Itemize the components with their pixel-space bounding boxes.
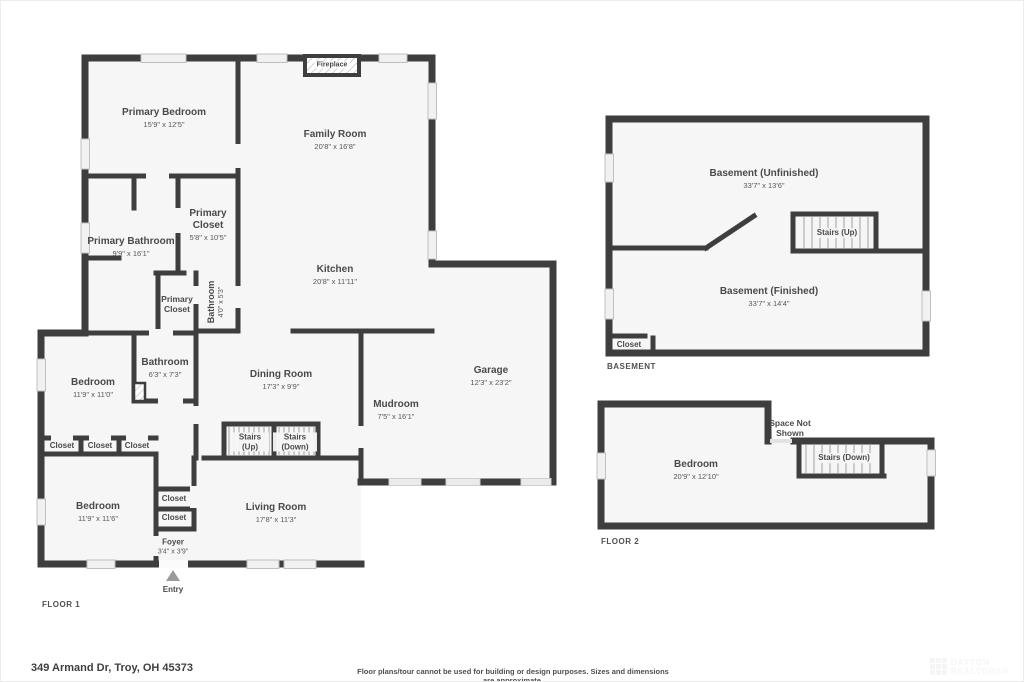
basement-section-label: BASEMENT bbox=[607, 362, 656, 371]
watermark-line1: DAYTON bbox=[951, 658, 1009, 667]
room-name: Closet bbox=[50, 441, 74, 451]
room-name: Bathroom bbox=[141, 357, 188, 369]
room-label-foyer: Foyer 3'4" x 3'9" bbox=[158, 538, 189, 557]
room-label-basement-closet: Closet bbox=[617, 340, 641, 350]
room-name: Primary Closet bbox=[151, 294, 203, 314]
room-dims: 20'8" x 16'8" bbox=[304, 142, 367, 151]
room-dims: 4'0" x 5'3" bbox=[218, 281, 226, 324]
room-name: Basement (Unfinished) bbox=[710, 168, 819, 180]
room-name: Primary Bedroom bbox=[122, 107, 206, 119]
room-label-living-room: Living Room 17'8" x 11'3" bbox=[246, 502, 307, 524]
room-name: Bathroom bbox=[206, 281, 217, 324]
floorplan-page: Primary Bedroom 15'9" x 12'5" Family Roo… bbox=[0, 0, 1024, 682]
room-label-closet-row-3: Closet bbox=[125, 441, 149, 451]
room-dims: 3'4" x 3'9" bbox=[158, 548, 189, 556]
room-label-primary-bedroom: Primary Bedroom 15'9" x 12'5" bbox=[122, 107, 206, 129]
room-name: Closet bbox=[88, 441, 112, 451]
room-name: Stairs (Up) bbox=[233, 432, 267, 451]
room-dims: 11'9" x 11'6" bbox=[76, 514, 120, 523]
room-dims: 17'8" x 11'3" bbox=[246, 515, 307, 524]
room-dims: 20'8" x 11'11" bbox=[313, 277, 357, 286]
room-label-closet-stack-2: Closet bbox=[162, 513, 186, 523]
room-name: Mudroom bbox=[373, 399, 419, 411]
room-dims: 6'3" x 7'3" bbox=[141, 370, 188, 379]
realtor-watermark: DAYTON REALTORS® bbox=[930, 658, 1009, 676]
floor1-section-label: FLOOR 1 bbox=[42, 600, 80, 609]
room-name: Family Room bbox=[304, 129, 367, 141]
room-dims: 33'7" x 13'6" bbox=[710, 181, 819, 190]
floorplan-drawing bbox=[1, 1, 1024, 682]
room-name: Foyer bbox=[158, 538, 189, 548]
room-dims: 5'8" x 10'5" bbox=[179, 233, 237, 242]
room-dims: 15'9" x 12'5" bbox=[122, 120, 206, 129]
room-name: Garage bbox=[470, 365, 511, 377]
room-name: Stairs (Down) bbox=[818, 453, 870, 463]
room-label-bathroom: Bathroom 6'3" x 7'3" bbox=[141, 357, 188, 379]
room-label-closet-stack-1: Closet bbox=[162, 494, 186, 504]
room-name: Closet bbox=[617, 340, 641, 350]
property-address: 349 Armand Dr, Troy, OH 45373 bbox=[31, 662, 193, 674]
watermark-line2: REALTORS® bbox=[951, 667, 1009, 676]
room-name: Primary Bathroom bbox=[87, 236, 174, 248]
room-label-bathroom-small: Bathroom 4'0" x 5'3" bbox=[206, 281, 226, 324]
room-label-closet-row-1: Closet bbox=[50, 441, 74, 451]
room-label-bedroom-1: Bedroom 11'9" x 11'0" bbox=[71, 377, 115, 399]
room-label-bedroom-2: Bedroom 11'9" x 11'6" bbox=[76, 501, 120, 523]
room-dims: 17'3" x 9'9" bbox=[250, 382, 312, 391]
room-name: Dining Room bbox=[250, 369, 312, 381]
room-name: Basement (Finished) bbox=[720, 286, 818, 298]
room-dims: 7'5" x 16'1" bbox=[373, 412, 419, 421]
floor2-section-label: FLOOR 2 bbox=[601, 537, 639, 546]
room-name: Stairs (Up) bbox=[817, 228, 857, 238]
room-label-garage: Garage 12'3" x 23'2" bbox=[470, 365, 511, 387]
room-label-basement-finished: Basement (Finished) 33'7" x 14'4" bbox=[720, 286, 818, 308]
room-label-primary-closet-2: Primary Closet bbox=[151, 294, 203, 314]
room-name: Primary Closet bbox=[179, 208, 237, 232]
realtor-grid-icon bbox=[930, 658, 947, 675]
realtor-watermark-text: DAYTON REALTORS® bbox=[951, 658, 1009, 676]
room-name: Stairs (Down) bbox=[275, 432, 315, 451]
room-name: Bedroom bbox=[673, 459, 718, 471]
room-label-mudroom: Mudroom 7'5" x 16'1" bbox=[373, 399, 419, 421]
room-label-primary-bathroom: Primary Bathroom 9'9" x 16'1" bbox=[87, 236, 174, 258]
room-dims: 11'9" x 11'0" bbox=[71, 390, 115, 399]
room-dims: 33'7" x 14'4" bbox=[720, 299, 818, 308]
room-label-primary-closet-1: Primary Closet 5'8" x 10'5" bbox=[179, 208, 237, 242]
room-label-stairs-down-f2: Stairs (Down) bbox=[816, 453, 872, 463]
room-name: Living Room bbox=[246, 502, 307, 514]
room-label-stairs-up-f1: Stairs (Up) bbox=[231, 432, 269, 451]
room-name: Kitchen bbox=[313, 264, 357, 276]
room-name: Closet bbox=[162, 494, 186, 504]
room-label-basement-unfinished: Basement (Unfinished) 33'7" x 13'6" bbox=[710, 168, 819, 190]
room-label-family-room: Family Room 20'8" x 16'8" bbox=[304, 129, 367, 151]
room-label-kitchen: Kitchen 20'8" x 11'11" bbox=[313, 264, 357, 286]
room-name: Closet bbox=[162, 513, 186, 523]
disclaimer-text: Floor plans/tour cannot be used for buil… bbox=[352, 667, 674, 682]
room-label-stairs-up-basement: Stairs (Up) bbox=[815, 228, 859, 238]
fireplace-label: Fireplace bbox=[315, 62, 350, 69]
room-label-space-not-shown: Space Not Shown bbox=[755, 418, 825, 438]
room-label-bedroom-f2: Bedroom 20'9" x 12'10" bbox=[673, 459, 718, 481]
room-name: Closet bbox=[125, 441, 149, 451]
room-dims: 20'9" x 12'10" bbox=[673, 472, 718, 481]
room-dims: 12'3" x 23'2" bbox=[470, 378, 511, 387]
room-name: Bedroom bbox=[71, 377, 115, 389]
room-name: Space Not Shown bbox=[755, 418, 825, 438]
room-label-closet-row-2: Closet bbox=[88, 441, 112, 451]
room-label-dining-room: Dining Room 17'3" x 9'9" bbox=[250, 369, 312, 391]
room-name: Bedroom bbox=[76, 501, 120, 513]
entry-label: Entry bbox=[163, 585, 183, 594]
room-label-stairs-down-f1: Stairs (Down) bbox=[273, 432, 317, 451]
room-dims: 9'9" x 16'1" bbox=[87, 249, 174, 258]
